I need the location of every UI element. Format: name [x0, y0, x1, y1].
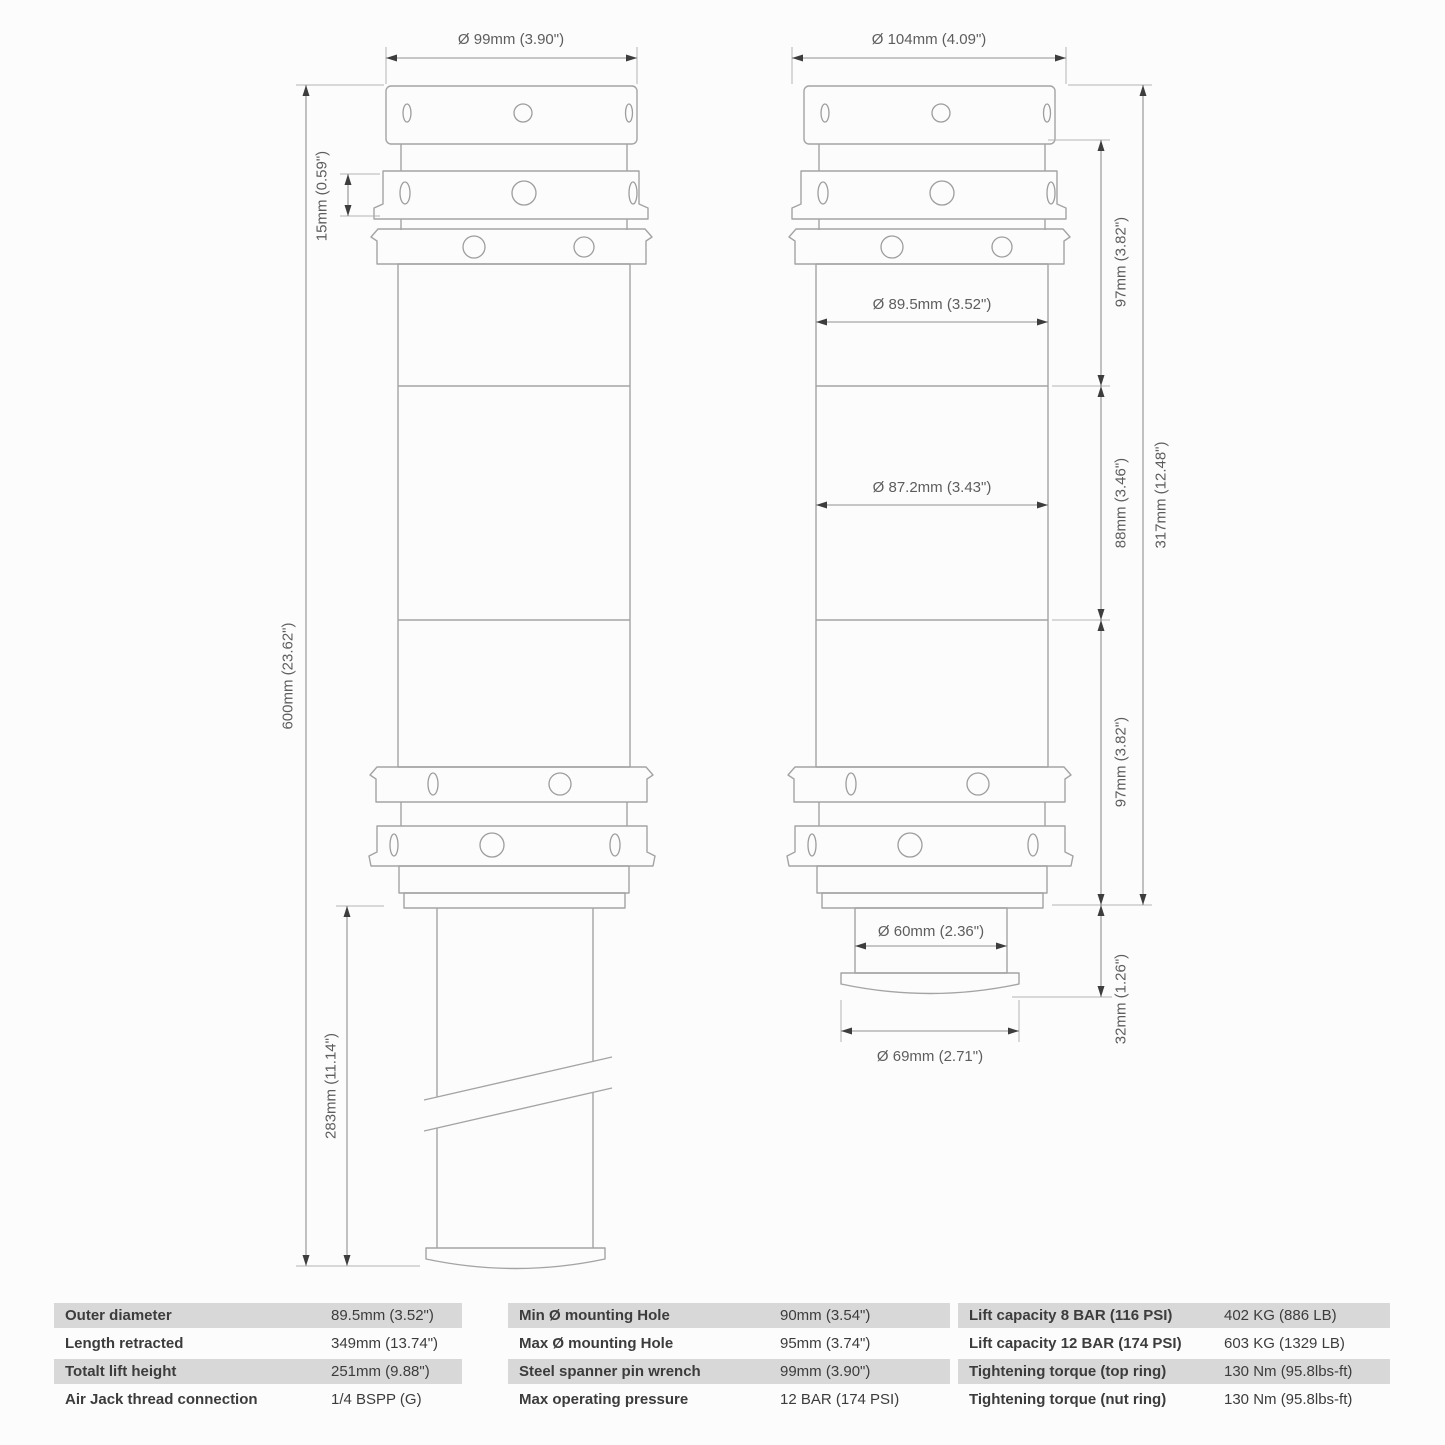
spec-row: Air Jack thread connection 1/4 BSPP (G): [54, 1387, 462, 1412]
retracted-view-dimensions: Ø 104mm (4.09") Ø 89.5mm (3.52") Ø 87.2m…: [792, 31, 1170, 1065]
dim-label-lower-section-height: 97mm (3.82"): [1113, 717, 1130, 807]
spec-row: Length retracted 349mm (13.74"): [54, 1331, 462, 1356]
spec-group-mounting: Min Ø mounting Hole 90mm (3.54") Max Ø m…: [508, 1303, 950, 1415]
dim-label-piston-extension: 283mm (11.14"): [323, 1033, 340, 1139]
spec-value: 99mm (3.90"): [780, 1363, 870, 1380]
dim-label-upper-section-height: 97mm (3.82"): [1113, 217, 1130, 307]
dim-label-total-length: 600mm (23.62"): [280, 622, 297, 729]
spec-value: 130 Nm (95.8lbs-ft): [1224, 1363, 1352, 1380]
spec-label: Lift capacity 12 BAR (174 PSI): [958, 1335, 1224, 1352]
spec-value: 1/4 BSPP (G): [331, 1391, 422, 1408]
spec-value: 95mm (3.74"): [780, 1335, 870, 1352]
air-jack-spec-sheet: { "drawing": { "extended_view": { "outer…: [0, 0, 1445, 1445]
spec-group-capacity: Lift capacity 8 BAR (116 PSI) 402 KG (88…: [958, 1303, 1390, 1415]
dim-label-nut-ring-height: 15mm (0.59"): [314, 151, 331, 241]
spec-row: Max Ø mounting Hole 95mm (3.74"): [508, 1331, 950, 1356]
spec-value: 402 KG (886 LB): [1224, 1307, 1337, 1324]
spec-row: Min Ø mounting Hole 90mm (3.54"): [508, 1303, 950, 1328]
spec-row: Steel spanner pin wrench 99mm (3.90"): [508, 1359, 950, 1384]
spec-value: 349mm (13.74"): [331, 1335, 438, 1352]
spec-value: 12 BAR (174 PSI): [780, 1391, 899, 1408]
spec-label: Totalt lift height: [54, 1363, 331, 1380]
spec-row: Max operating pressure 12 BAR (174 PSI): [508, 1387, 950, 1412]
dim-label-upper-body-diameter: Ø 89.5mm (3.52"): [873, 296, 992, 313]
dim-label-foot-height: 32mm (1.26"): [1113, 954, 1130, 1044]
spec-label: Max operating pressure: [508, 1391, 780, 1408]
extended-view-drawing: [369, 86, 655, 1269]
technical-drawing: Ø 99mm (3.90") 600mm (23.62") 15mm (0.59…: [0, 0, 1445, 1295]
dim-label-lower-body-diameter: Ø 87.2mm (3.43"): [873, 479, 992, 496]
spec-value: 130 Nm (95.8lbs-ft): [1224, 1391, 1352, 1408]
dim-label-middle-section-height: 88mm (3.46"): [1113, 458, 1130, 548]
spec-label: Tightening torque (nut ring): [958, 1391, 1224, 1408]
spec-label: Air Jack thread connection: [54, 1391, 331, 1408]
spec-row: Lift capacity 12 BAR (174 PSI) 603 KG (1…: [958, 1331, 1390, 1356]
dim-label-top-diameter: Ø 104mm (4.09"): [872, 31, 987, 48]
spec-label: Outer diameter: [54, 1307, 331, 1324]
spec-label: Steel spanner pin wrench: [508, 1363, 780, 1380]
spec-label: Lift capacity 8 BAR (116 PSI): [958, 1307, 1224, 1324]
dim-label-piston-diameter: Ø 60mm (2.36"): [878, 923, 984, 940]
spec-value: 89.5mm (3.52"): [331, 1307, 434, 1324]
spec-label: Tightening torque (top ring): [958, 1363, 1224, 1380]
spec-value: 251mm (9.88"): [331, 1363, 430, 1380]
spec-row: Totalt lift height 251mm (9.88"): [54, 1359, 462, 1384]
spec-label: Max Ø mounting Hole: [508, 1335, 780, 1352]
spec-label: Min Ø mounting Hole: [508, 1307, 780, 1324]
spec-row: Tightening torque (top ring) 130 Nm (95.…: [958, 1359, 1390, 1384]
dim-label-foot-diameter: Ø 69mm (2.71"): [877, 1048, 983, 1065]
spec-group-dimensions: Outer diameter 89.5mm (3.52") Length ret…: [54, 1303, 462, 1415]
retracted-view-drawing: [787, 86, 1073, 994]
spec-row: Outer diameter 89.5mm (3.52"): [54, 1303, 462, 1328]
spec-label: Length retracted: [54, 1335, 331, 1352]
dim-label-outer-diameter: Ø 99mm (3.90"): [458, 31, 564, 48]
spec-table: Outer diameter 89.5mm (3.52") Length ret…: [0, 1303, 1445, 1418]
spec-row: Tightening torque (nut ring) 130 Nm (95.…: [958, 1387, 1390, 1412]
spec-value: 90mm (3.54"): [780, 1307, 870, 1324]
dim-label-total-body-height: 317mm (12.48"): [1153, 441, 1170, 548]
spec-row: Lift capacity 8 BAR (116 PSI) 402 KG (88…: [958, 1303, 1390, 1328]
spec-value: 603 KG (1329 LB): [1224, 1335, 1345, 1352]
